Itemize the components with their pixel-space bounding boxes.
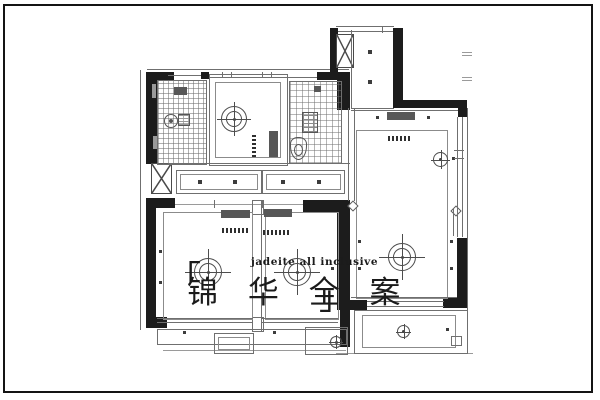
window-line [453,208,454,236]
watermark-bracket-close: 」 [319,271,352,319]
ceiling-lamp-icon [330,336,342,348]
downlight-icon [446,328,449,331]
drain-box-icon [451,336,462,346]
cabinet-icon [269,131,278,157]
entry-door-line [338,31,393,32]
dimension-text-mark [462,77,472,78]
downlight-icon [233,180,237,184]
dimension-text-mark [462,52,472,53]
downlight-icon [358,240,361,243]
downlight-icon [450,267,453,270]
corridor-wall-line [351,108,394,109]
window-line [157,318,253,319]
window-tick [454,150,464,151]
dimension-text-mark [462,55,472,56]
curtain-track-icon [222,228,249,233]
door-frame-tick [214,200,215,208]
partition-wall-end [252,200,264,215]
outer-wall-line [140,70,141,330]
wall-segment [458,108,467,117]
wall-line [348,108,349,201]
shaft-icon [151,163,172,194]
downlight-icon [273,331,276,334]
window-tick [454,158,464,159]
dimension-text-mark [462,80,472,81]
wall-segment [443,298,467,308]
ceiling-lamp-icon [397,325,410,338]
door-opening-line [175,204,303,205]
window-tick [382,27,383,33]
vent-grille-icon [302,112,318,133]
downlight-icon [450,240,453,243]
vent-grille-icon [178,114,190,126]
window-line [462,117,463,237]
window-line [457,117,458,237]
downlight-icon [317,180,321,184]
downlight-icon [159,250,162,253]
wall-segment [146,198,156,328]
ac-vent-icon [264,209,292,217]
downlight-icon [183,331,186,334]
wall-line [351,110,458,111]
downlight-icon [368,80,372,84]
bay-window-box-inner [218,337,250,350]
downlight-icon [427,116,430,119]
dimension-text-mark [153,136,157,149]
outer-wall-line [336,26,394,27]
ac-vent-icon [221,210,250,218]
ceiling-lamp-icon [433,152,448,167]
wall-segment [393,28,403,108]
downlight-icon [159,281,162,284]
curtain-track-icon [252,133,256,157]
wall-segment [303,200,347,212]
downlight-icon [376,116,379,119]
floor-plan-canvas: jadeite all inclusive 「 锦 华 全 案 」 [0,0,600,400]
downlight-icon [281,180,285,184]
curtain-track-icon [263,230,291,235]
downlight-icon [368,50,372,54]
wall-segment [201,72,209,79]
dimension-text-mark [152,84,156,98]
wall-line [354,108,355,201]
window-line [168,75,201,76]
outer-wall-line [147,69,349,70]
wall-line [168,163,350,164]
wall-segment [393,100,467,108]
exhaust-fan-icon [164,114,178,128]
watermark-title: 锦 华 全 案 [187,267,411,312]
corridor-wall-line [351,30,352,108]
downlight-icon [314,86,321,92]
curtain-track-icon [388,136,412,141]
hallway-panel-inner [266,174,341,190]
ceiling-fixture-icon [174,87,187,95]
downlight-icon [198,180,202,184]
hallway-panel-inner [180,174,258,190]
window-line [157,322,253,323]
ac-vent-icon [387,112,415,120]
ceiling-lamp-icon [221,106,247,132]
window-line [262,322,338,323]
